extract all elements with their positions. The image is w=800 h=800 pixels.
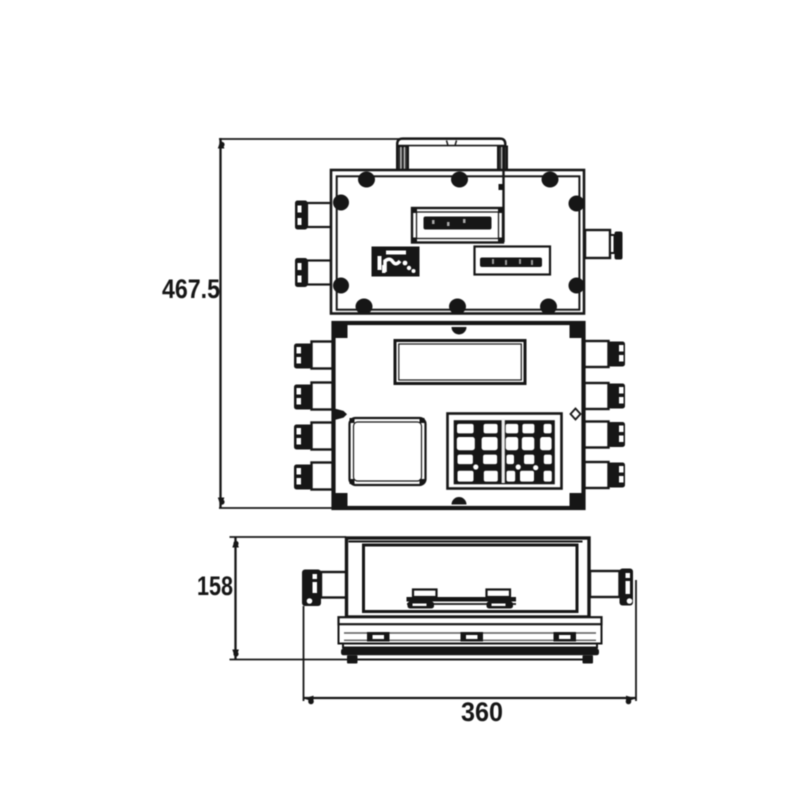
svg-text:158: 158 [197, 571, 233, 601]
svg-text:467.5: 467.5 [162, 274, 220, 304]
svg-text:360: 360 [461, 697, 503, 727]
